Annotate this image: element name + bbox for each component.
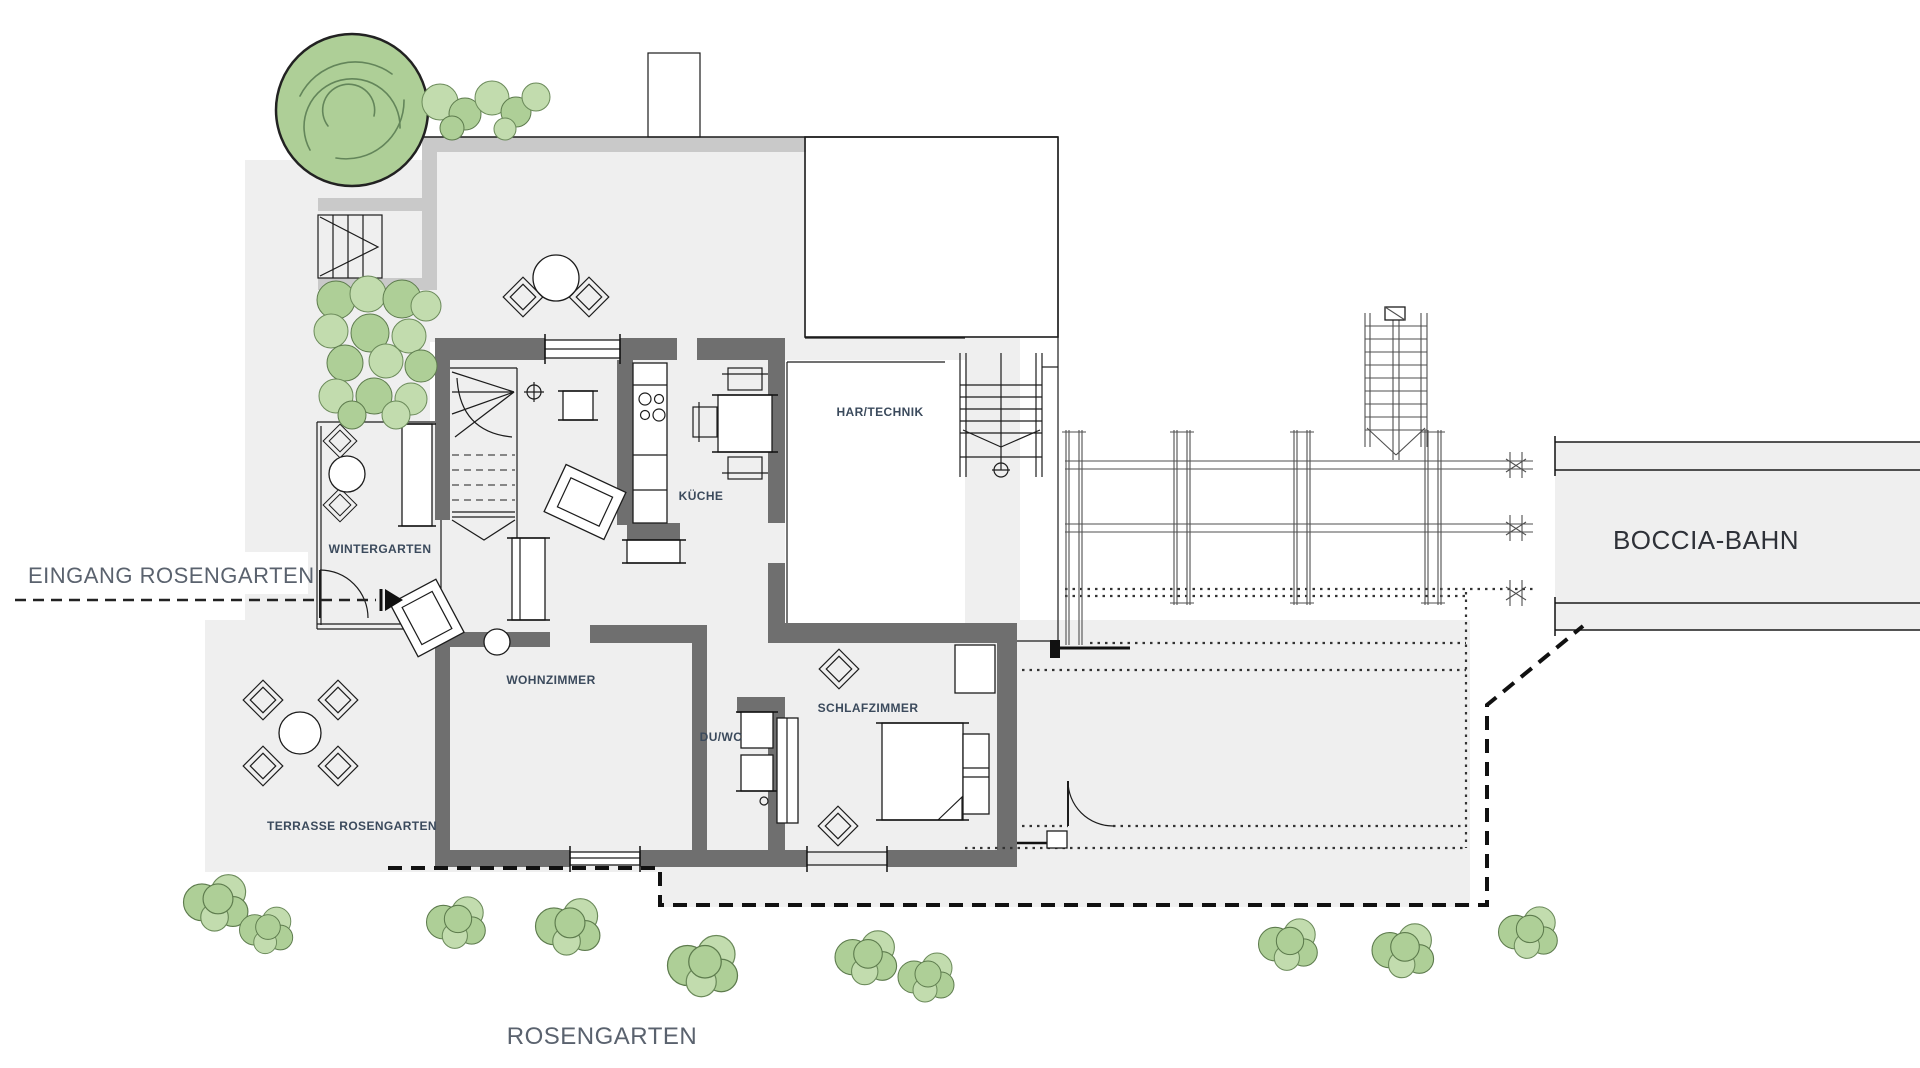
label-duwc: DU/WC <box>700 730 743 744</box>
niche <box>955 645 995 693</box>
duwc-fixtures <box>736 712 778 805</box>
upper-deck-area <box>422 152 806 342</box>
chimney-outline <box>648 53 700 137</box>
label-schlafzimmer: SCHLAFZIMMER <box>818 701 919 715</box>
pergola-right-connectors <box>1506 452 1526 606</box>
terrace-band-top <box>422 137 806 152</box>
label-terrasse: TERRASSE ROSENGARTEN <box>267 819 437 833</box>
label-wintergarten: WINTERGARTEN <box>329 542 432 556</box>
hall-bench <box>558 391 598 420</box>
tree-side-bushes <box>422 81 550 140</box>
label-boccia: BOCCIA-BAHN <box>1613 525 1799 555</box>
label-technik: HAR/TECHNIK <box>836 405 923 419</box>
label-wohnzimmer: WOHNZIMMER <box>506 673 595 687</box>
label-kueche: KÜCHE <box>679 488 724 503</box>
upper-room-outline <box>805 137 1058 337</box>
floor-plan-svg: EINGANG ROSENGARTEN WINTERGARTEN WOHNZIM… <box>0 0 1920 1068</box>
round-table <box>329 456 365 492</box>
bed <box>876 723 989 820</box>
label-rosengarten: ROSENGARTEN <box>507 1023 697 1050</box>
pergola <box>1062 307 1533 645</box>
floor-plan-canvas: EINGANG ROSENGARTEN WINTERGARTEN WOHNZIM… <box>0 0 1920 1068</box>
round-table <box>279 712 321 754</box>
sofa <box>507 538 550 620</box>
label-eingang: EINGANG ROSENGARTEN <box>28 563 315 588</box>
kitchen-side-table <box>622 540 686 563</box>
wardrobe <box>777 718 798 823</box>
terrace-band-steps-top <box>318 198 437 211</box>
external-stair <box>1365 307 1427 460</box>
large-tree <box>276 34 428 186</box>
hedge <box>314 276 441 429</box>
kitchen-counter <box>633 363 667 523</box>
pergola-posts <box>1062 430 1445 645</box>
side-table-round <box>484 629 510 655</box>
sideboard <box>398 424 436 526</box>
